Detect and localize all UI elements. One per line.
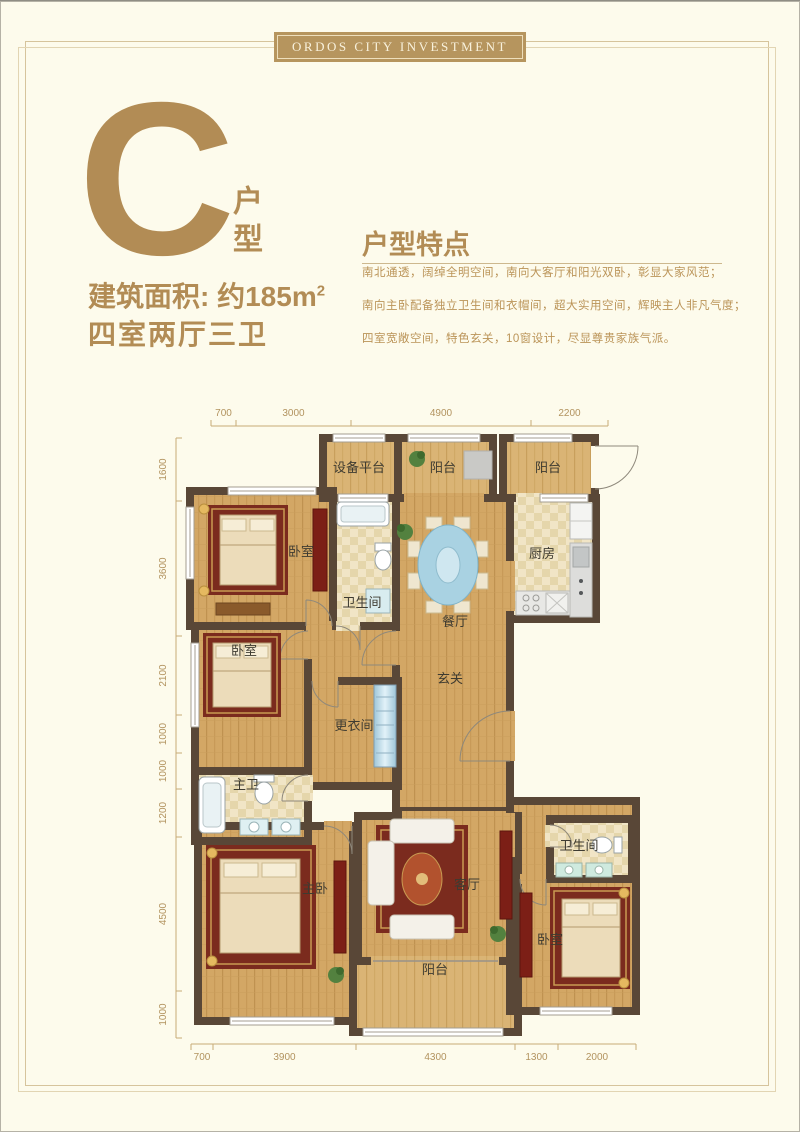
dimension-value-bottom: 1300 [525,1052,548,1063]
dimension-value-top: 4900 [430,408,453,419]
feature-line-1: 南北通透，阔绰全明空间，南向大客厅和阳光双卧，彰显大家风范； [362,267,762,280]
room-label-bathroom-east: 卫生间 [559,838,598,853]
brand-banner-text: ORDOS CITY INVESTMENT [277,35,523,59]
room-label-balcony-south: 阳台 [422,962,448,977]
room-label-balcony-northeast: 阳台 [535,460,561,475]
dimension-value-bottom: 3900 [273,1052,296,1063]
brand-banner: ORDOS CITY INVESTMENT [274,32,526,62]
dimension-value-top: 700 [215,408,232,419]
dimension-value-bottom: 2000 [586,1052,609,1063]
window [540,494,588,502]
floor-hall [308,626,396,681]
brochure-page: ORDOS CITY INVESTMENT C 户型 建筑面积: 约185m2 … [0,0,800,1132]
door-balcony-exit [595,446,638,489]
room-label-bedroom-southeast: 卧室 [537,932,563,947]
window [514,434,572,442]
square-meter-exponent: 2 [317,283,325,300]
room-label-foyer: 玄关 [437,671,463,686]
room-label-kitchen: 厨房 [529,546,555,561]
dimension-value-top: 2200 [558,408,581,419]
dimension-value-left: 4500 [158,902,169,925]
features-title: 户型特点 [362,223,470,262]
window [230,1017,334,1025]
window [408,434,480,442]
feature-line-2: 南向主卧配备独立卫生间和衣帽间，超大实用空间，辉映主人非凡气度； [362,300,762,313]
tv-cabinet-southeast [520,893,532,977]
tv-cabinet-northwest [313,509,327,591]
wardrobe [374,685,396,767]
room-label-living-room: 客厅 [454,877,480,892]
dimension-value-top: 3000 [282,408,305,419]
dimension-value-left: 1000 [158,1003,169,1026]
room-label-dining-room: 餐厅 [442,614,468,629]
tv-cabinet-living [500,831,512,919]
room-label-equipment-platform: 设备平台 [333,460,385,475]
floorplan-drawing: 设备平台阳台阳台卧室卫生间餐厅厨房卧室更衣间玄关主卫主卧客厅卫生间卧室阳台700… [158,393,658,1093]
room-label-master-bedroom: 主卧 [302,881,328,896]
plant [397,524,413,540]
window [333,434,385,442]
features-divider [362,263,722,264]
feature-line-3: 四室宽敞空间，特色玄关，10窗设计，尽显尊贵家族气派。 [362,333,762,346]
plant [409,451,425,467]
equipment-box [464,451,492,479]
room-label-dressing-room: 更衣间 [334,718,373,733]
dimension-value-left: 1000 [158,759,169,782]
dimension-value-left: 2100 [158,664,169,687]
dimension-value-left: 1000 [158,722,169,745]
dimension-value-bottom: 4300 [424,1052,447,1063]
window [363,1028,503,1036]
features-paragraphs: 南北通透，阔绰全明空间，南向大客厅和阳光双卧，彰显大家风范； 南向主卧配备独立卫… [362,267,762,366]
window [186,507,194,579]
room-label-bedroom-northwest: 卧室 [288,544,314,559]
dimension-value-bottom: 700 [194,1052,211,1063]
unit-letter: C [78,71,235,289]
window [338,494,388,502]
plant [490,926,506,942]
window [228,487,316,495]
room-label-master-bathroom: 主卫 [233,777,259,792]
window [191,643,199,727]
plant [328,967,344,983]
room-label-balcony-north: 阳台 [430,460,456,475]
dimension-value-left: 3600 [158,557,169,580]
room-label-bathroom-north: 卫生间 [342,595,381,610]
bed-master [206,845,316,969]
tv-cabinet-master [334,861,346,953]
window [540,1007,612,1015]
dimension-value-left: 1600 [158,458,169,481]
room-count-text: 四室两厅三卫 [88,313,268,353]
room-label-bedroom-west: 卧室 [231,643,257,658]
dimension-value-left: 1200 [158,801,169,824]
